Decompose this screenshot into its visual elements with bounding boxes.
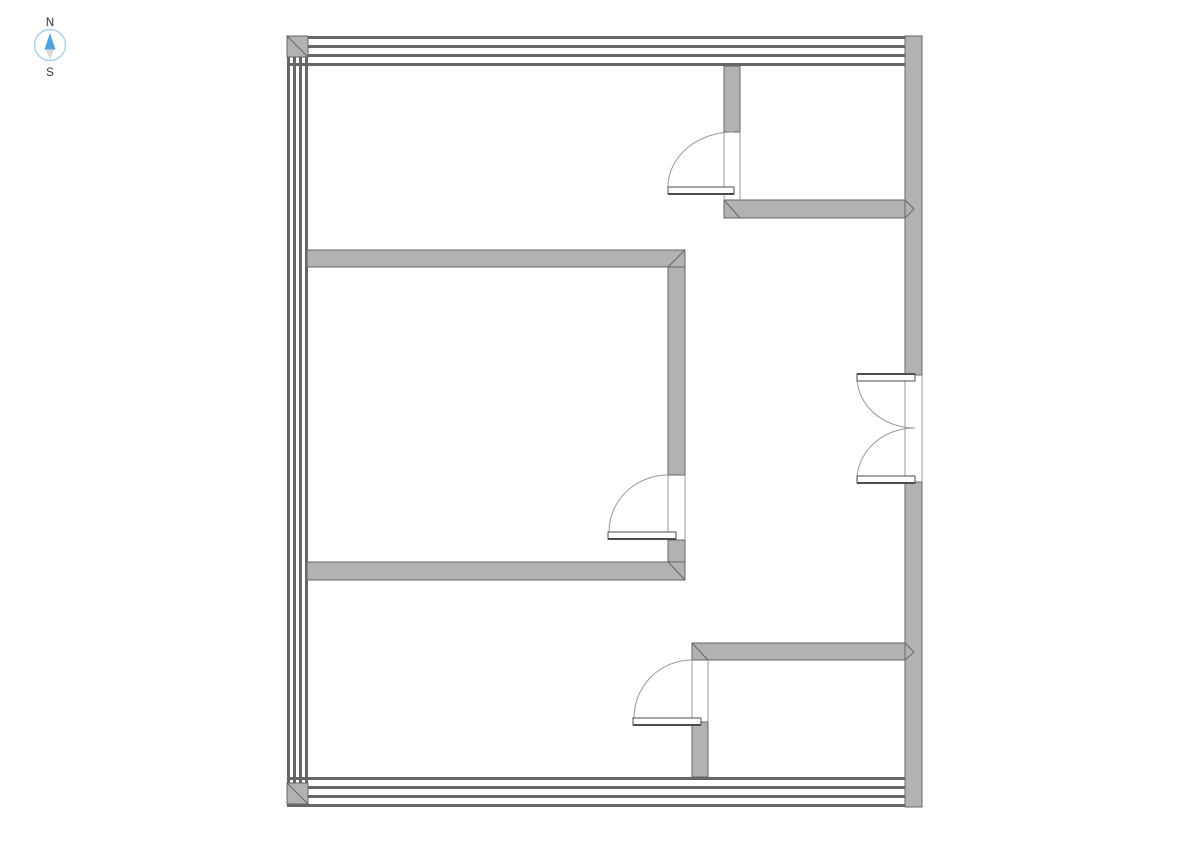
- closet-door-leaf[interactable]: [668, 187, 734, 194]
- room-wall-top[interactable]: [307, 250, 685, 267]
- outer-wall-bottom-line-2[interactable]: [287, 786, 922, 789]
- entry-double-door-bottom-leaf[interactable]: [857, 476, 915, 483]
- outer-wall-bottom-line-4[interactable]: [287, 804, 922, 807]
- room-wall-right-upper[interactable]: [668, 267, 685, 475]
- outer-wall-left-line-3[interactable]: [299, 36, 302, 807]
- lower-wall-horizontal[interactable]: [692, 643, 905, 660]
- floorplan-objects: [287, 36, 922, 807]
- outer-wall-left-line-2[interactable]: [293, 36, 296, 807]
- room-wall-bottom[interactable]: [307, 562, 685, 580]
- lower-wall-vertical[interactable]: [692, 722, 708, 777]
- outer-wall-top-line-4[interactable]: [287, 63, 922, 66]
- entry-double-door-top-leaf[interactable]: [857, 374, 915, 381]
- outer-wall-bottom-line-1[interactable]: [287, 777, 922, 780]
- compass: N S: [35, 17, 66, 79]
- outer-wall-right-lower[interactable]: [905, 482, 922, 807]
- outer-wall-bottom-line-3[interactable]: [287, 795, 922, 798]
- outer-wall-right-upper[interactable]: [905, 36, 922, 375]
- closet-door-swing-arc: [668, 132, 733, 187]
- room-wall-right-lower[interactable]: [668, 540, 685, 562]
- entry-double-door-bottom-swing-arc: [857, 428, 915, 480]
- outer-wall-left-line-1[interactable]: [287, 36, 290, 807]
- floorplan-page: N S: [0, 0, 1191, 841]
- closet-wall-horizontal[interactable]: [724, 200, 905, 218]
- outer-wall-top-line-3[interactable]: [287, 54, 922, 57]
- outer-wall-top-line-1[interactable]: [287, 36, 922, 39]
- compass-needle-south-icon: [46, 50, 55, 60]
- lower-door-leaf[interactable]: [633, 718, 701, 725]
- floorplan-canvas: N S: [0, 0, 1191, 841]
- closet-wall-vertical[interactable]: [724, 66, 740, 132]
- compass-south-label: S: [46, 67, 54, 79]
- compass-needle-north-icon: [45, 33, 56, 50]
- bedroom-door-leaf[interactable]: [608, 532, 676, 539]
- bedroom-door-swing-arc: [609, 475, 668, 532]
- outer-wall-left-line-4[interactable]: [305, 36, 308, 807]
- entry-double-door-top-swing-arc: [857, 377, 915, 428]
- outer-wall-top-line-2[interactable]: [287, 45, 922, 48]
- compass-north-label: N: [46, 17, 54, 29]
- lower-door-swing-arc: [634, 660, 692, 718]
